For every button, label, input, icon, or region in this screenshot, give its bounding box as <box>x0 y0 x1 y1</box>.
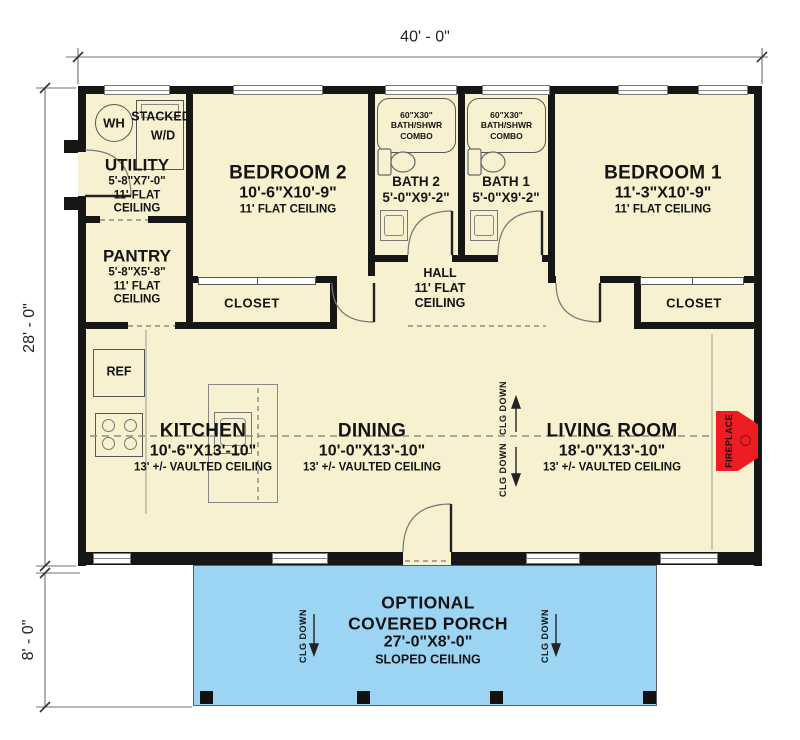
dim-tick <box>40 561 50 571</box>
wall-utility-right <box>186 93 193 329</box>
wall-bedroom2-bottom <box>186 276 198 283</box>
wall-left-upper <box>78 86 86 152</box>
wall-utility-pantry <box>148 216 192 223</box>
kitchen-label: KITCHEN 10'-6"X13'-10" 13' +/- VAULTED C… <box>134 421 272 476</box>
wall-bedroom1-bottom <box>600 276 634 283</box>
wall-utility-pantry <box>85 216 100 223</box>
wall-bath1-bottom <box>542 255 555 262</box>
room-ceiling: CEILING <box>103 294 171 308</box>
window <box>698 85 748 95</box>
room-ceiling: 11' FLAT <box>105 189 169 203</box>
bath2-label: BATH 2 5'-0"X9'-2" <box>382 174 449 206</box>
window <box>272 553 328 564</box>
window <box>660 553 718 564</box>
window <box>104 85 170 95</box>
utility-label: UTILITY 5'-8"X7'-0" 11' FLAT CEILING <box>105 156 169 217</box>
dining-label: DINING 10'-0"X13'-10" 13' +/- VAULTED CE… <box>303 421 441 476</box>
burner <box>102 419 115 432</box>
porch-post <box>490 691 503 704</box>
room-name: BATH 1 <box>472 174 539 190</box>
room-ceiling: 11' FLAT CEILING <box>229 204 347 218</box>
clg-down-label: CLG DOWN <box>498 381 508 435</box>
closet-door <box>198 277 316 285</box>
room-ceiling: 13' +/- VAULTED CEILING <box>303 462 441 476</box>
room-name: BEDROOM 2 <box>229 163 347 185</box>
tub-label: 60"X30" <box>400 110 433 121</box>
dim-tick <box>40 83 50 93</box>
dim-tick <box>40 702 50 712</box>
room-name: DINING <box>303 421 441 443</box>
room-size: 10'-6"X10'-9" <box>229 185 347 204</box>
room-size: 5'-0"X9'-2" <box>382 190 449 206</box>
room-ceiling: 13' +/- VAULTED CEILING <box>543 462 681 476</box>
porch-label: OPTIONAL COVERED PORCH 27'-0"X8'-0" SLOP… <box>348 593 508 668</box>
room-ceiling: SLOPED CEILING <box>348 653 508 668</box>
wall-closet2-bottom <box>186 322 337 329</box>
window <box>233 85 323 95</box>
dim-tick <box>73 52 83 62</box>
fireplace-vent <box>740 435 751 446</box>
room-size: 10'-0"X13'-10" <box>303 443 441 462</box>
wall-stub <box>548 262 555 276</box>
room-size: 18'-0"X13'-10" <box>543 443 681 462</box>
tub-label: COMBO <box>400 131 433 142</box>
clg-down-label: CLG DOWN <box>540 609 550 663</box>
room-ceiling: CEILING <box>105 203 169 217</box>
wd-label: W/D <box>151 129 175 144</box>
wall-left-lower <box>78 196 86 566</box>
room-size: 11'-3"X10'-9" <box>604 185 722 204</box>
room-name: PANTRY <box>103 247 171 267</box>
tub-label: COMBO <box>490 131 523 142</box>
fireplace-label: FIREPLACE <box>724 414 734 468</box>
tub-label: BATH/SHWR <box>391 120 442 131</box>
wall-bedroom2-bath2 <box>368 93 375 262</box>
dim-left-main-label: 28' - 0" <box>21 303 39 353</box>
porch-post <box>357 691 370 704</box>
tub-label: 60"X30" <box>490 110 523 121</box>
dim-top-label: 40' - 0" <box>400 29 450 48</box>
room-ceiling: 11' FLAT <box>103 280 171 294</box>
tub-label: BATH/SHWR <box>481 120 532 131</box>
closet-label: CLOSET <box>666 295 722 310</box>
room-name: KITCHEN <box>134 421 272 443</box>
wall-pantry-bottom <box>85 322 128 329</box>
room-ceiling: 11' FLAT CEILING <box>604 204 722 218</box>
window <box>385 85 457 95</box>
porch-post <box>200 691 213 704</box>
room-size: 10'-6"X13'-10" <box>134 443 272 462</box>
wall-bath-bottom <box>452 255 498 262</box>
closet-door <box>640 277 744 285</box>
window <box>618 85 668 95</box>
room-size: 5'-8"X7'-0" <box>105 176 169 190</box>
door-jamb-block <box>64 140 78 153</box>
tub-shower-combo: 60"X30" BATH/SHWR COMBO <box>377 98 456 153</box>
wall-closet1-bottom <box>634 322 762 329</box>
room-name: UTILITY <box>105 156 169 176</box>
ref-label: REF <box>107 365 132 380</box>
room-name: LIVING ROOM <box>543 421 681 443</box>
room-name: OPTIONAL <box>348 593 508 614</box>
stacked-label: STACKED <box>131 110 191 125</box>
room-ceiling: 11' FLAT <box>415 281 466 296</box>
burner <box>102 437 115 450</box>
bedroom2-label: BEDROOM 2 10'-6"X10'-9" 11' FLAT CEILING <box>229 163 347 218</box>
window <box>526 553 580 564</box>
wall-bath1-bedroom1 <box>548 93 555 262</box>
hall-label: HALL 11' FLAT CEILING <box>415 266 466 310</box>
pantry-label: PANTRY 5'-8"X5'-8" 11' FLAT CEILING <box>103 247 171 308</box>
room-ceiling: CEILING <box>415 295 466 310</box>
room-name: COVERED PORCH <box>348 613 508 634</box>
dim-left-porch-label: 8' - 0" <box>20 620 38 661</box>
window <box>93 553 131 564</box>
vanity-sink <box>474 215 494 236</box>
room-ceiling: 13' +/- VAULTED CEILING <box>134 462 272 476</box>
porch-post <box>643 691 656 704</box>
room-name: BEDROOM 1 <box>604 163 722 185</box>
dim-tick <box>40 568 50 578</box>
clg-down-label: CLG DOWN <box>498 443 508 497</box>
wall-bedroom1-bottom <box>744 276 762 283</box>
wall-stub <box>368 262 375 276</box>
door-jamb-block <box>64 197 78 210</box>
living-room-label: LIVING ROOM 18'-0"X13'-10" 13' +/- VAULT… <box>543 421 681 476</box>
room-size: 27'-0"X8'-0" <box>348 634 508 653</box>
room-name: HALL <box>415 266 466 281</box>
room-size: 5'-8"X5'-8" <box>103 267 171 281</box>
clg-down-label: CLG DOWN <box>298 609 308 663</box>
room-name: BATH 2 <box>382 174 449 190</box>
tub-shower-combo: 60"X30" BATH/SHWR COMBO <box>467 98 546 153</box>
water-heater-label: WH <box>103 115 125 130</box>
room-size: 5'-0"X9'-2" <box>472 190 539 206</box>
vanity-sink <box>384 215 404 236</box>
entry-door-opening <box>403 552 451 565</box>
dim-tick <box>757 52 767 62</box>
floor-plan: 60"X30" BATH/SHWR COMBO 60"X30" BATH/SHW… <box>0 0 800 740</box>
bedroom1-label: BEDROOM 1 11'-3"X10'-9" 11' FLAT CEILING <box>604 163 722 218</box>
bath1-label: BATH 1 5'-0"X9'-2" <box>472 174 539 206</box>
wall-bedroom1-bottom <box>548 276 556 283</box>
wall-bath2-bath1 <box>458 93 465 262</box>
window <box>482 85 550 95</box>
closet-label: CLOSET <box>224 295 280 310</box>
wall-bath2-bottom <box>368 255 408 262</box>
